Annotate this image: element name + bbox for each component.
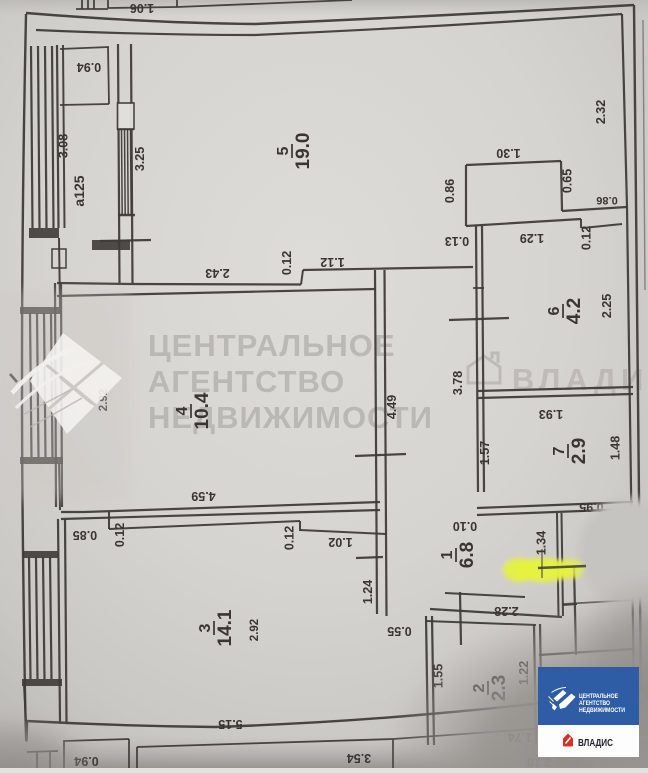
svg-text:а125: а125 (71, 175, 87, 206)
svg-text:3.25: 3.25 (133, 147, 147, 171)
svg-text:1.48: 1.48 (609, 436, 623, 460)
svg-text:1.24: 1.24 (361, 580, 375, 604)
svg-text:3: 3 (197, 623, 214, 632)
svg-text:0.86: 0.86 (596, 194, 617, 206)
svg-text:5: 5 (275, 146, 292, 155)
svg-text:4.59: 4.59 (191, 489, 215, 503)
svg-text:0.55: 0.55 (387, 624, 411, 638)
svg-text:АГЕНТСТВО: АГЕНТСТВО (148, 364, 345, 399)
svg-text:3.78: 3.78 (451, 371, 465, 395)
svg-text:ЦЕНТРАЛЬНОЕ: ЦЕНТРАЛЬНОЕ (579, 693, 619, 700)
svg-text:4.49: 4.49 (385, 395, 399, 419)
svg-text:ЦЕНТРАЛЬНОЕ: ЦЕНТРАЛЬНОЕ (148, 328, 396, 363)
svg-text:1: 1 (439, 550, 456, 559)
svg-text:1.02: 1.02 (328, 535, 352, 549)
svg-text:3.54: 3.54 (347, 751, 371, 765)
svg-text:19.0: 19.0 (293, 133, 314, 170)
svg-text:1.93: 1.93 (539, 407, 563, 421)
svg-text:1.30: 1.30 (496, 146, 520, 160)
svg-text:0.94: 0.94 (77, 60, 101, 74)
svg-text:1.29: 1.29 (520, 231, 544, 245)
svg-text:2.28: 2.28 (494, 604, 518, 618)
svg-text:0.12: 0.12 (280, 251, 294, 275)
svg-text:ВЛАДИС: ВЛАДИС (578, 737, 613, 749)
svg-text:1.57: 1.57 (478, 441, 492, 465)
svg-text:10.4: 10.4 (192, 392, 213, 429)
svg-text:3.08: 3.08 (57, 134, 71, 158)
svg-text:1.12: 1.12 (320, 255, 344, 269)
svg-text:ВЛАДИС: ВЛАДИС (512, 362, 648, 397)
svg-text:НЕДВИЖИМОСТИ: НЕДВИЖИМОСТИ (579, 707, 625, 714)
svg-text:0.10: 0.10 (453, 519, 477, 533)
svg-text:1.06: 1.06 (130, 1, 154, 15)
svg-text:0.85: 0.85 (73, 528, 97, 542)
svg-text:5.15: 5.15 (218, 717, 242, 731)
svg-text:0.12: 0.12 (113, 523, 127, 547)
svg-text:14.1: 14.1 (215, 609, 236, 646)
svg-text:0.86: 0.86 (443, 179, 457, 203)
svg-text:4: 4 (174, 406, 191, 415)
svg-text:4.2: 4.2 (564, 298, 585, 324)
svg-text:7: 7 (551, 446, 568, 455)
svg-text:2.92: 2.92 (249, 619, 261, 641)
svg-text:2.25: 2.25 (600, 294, 614, 318)
svg-text:0.12: 0.12 (580, 226, 594, 250)
svg-text:0.12: 0.12 (283, 526, 297, 550)
svg-text:6: 6 (546, 306, 563, 315)
svg-text:0.65: 0.65 (561, 169, 575, 193)
svg-text:АГЕНТСТВО: АГЕНТСТВО (579, 700, 610, 707)
svg-text:0.13: 0.13 (445, 234, 469, 248)
svg-text:2.32: 2.32 (594, 100, 608, 124)
svg-text:2.43: 2.43 (205, 266, 229, 280)
svg-text:6.8: 6.8 (457, 542, 478, 568)
svg-text:2.9: 2.9 (569, 438, 590, 464)
